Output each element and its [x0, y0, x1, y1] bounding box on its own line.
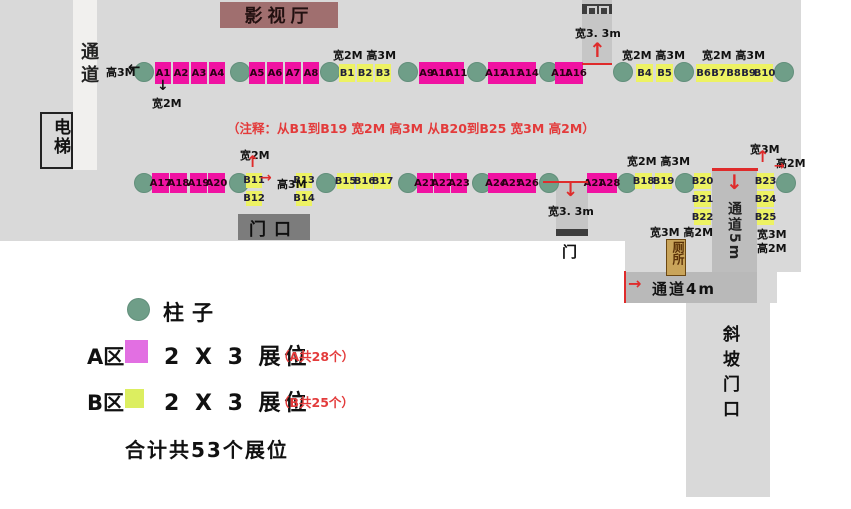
doorway-box: 门口	[238, 214, 310, 240]
ramp-doorway: 斜坡门口	[686, 303, 770, 497]
booth-B8: B8	[726, 64, 741, 82]
elevator-label: 电梯	[48, 118, 73, 156]
note-text: （注释：从B1到B19 宽2M 高3M 从B20到B25 宽3M 高2M）	[227, 118, 595, 137]
legend-pillar-icon	[127, 298, 150, 321]
red-arrow-icon: →	[774, 160, 785, 173]
booth-B10: B10	[756, 64, 773, 82]
ramp-doorway-label: 斜坡门口	[717, 325, 742, 425]
red-line	[712, 168, 758, 171]
passage-4m: 通道4m	[625, 272, 757, 303]
pillar	[230, 62, 250, 82]
booth-B19: B19	[655, 173, 672, 189]
floor-filler	[757, 272, 777, 303]
legend-zone-b-prefix: B区	[87, 387, 124, 417]
legend-zone-b-swatch	[125, 389, 144, 408]
booth-A28: A28	[602, 173, 617, 193]
booth-B23: B23	[757, 173, 774, 189]
booth-A16: A16	[569, 62, 583, 84]
pillar	[674, 62, 694, 82]
pillar	[774, 62, 794, 82]
red-arrow-icon: ↓	[726, 172, 743, 192]
booth-A14: A14	[520, 62, 536, 84]
black-arrow-icon: ←	[128, 60, 141, 75]
booth-B2: B2	[357, 64, 373, 82]
red-arrow-icon: ↑	[246, 154, 259, 170]
legend-zone-a-prefix: A区	[87, 341, 124, 371]
booth-B5: B5	[656, 64, 673, 82]
cinema-hall-box: 影视厅	[220, 2, 338, 28]
booth-B12: B12	[246, 191, 262, 206]
toilet-box: 厕所	[666, 239, 686, 276]
booth-A8: A8	[303, 62, 319, 84]
booth-A3: A3	[191, 62, 207, 84]
dimension-label: 宽3M 高2M	[650, 224, 713, 240]
floor-plan: 通道 电梯 影视厅 门口 门 通道5m 通道4m 斜坡门口 厕所 （注释：从B1…	[0, 0, 851, 509]
legend-zone-a-count: （A共28个）	[277, 346, 354, 365]
red-line	[543, 181, 588, 183]
pillar	[467, 62, 487, 82]
booth-A18: A18	[170, 173, 187, 193]
pillar	[613, 62, 633, 82]
dimension-label: 宽2M 高3M	[627, 153, 690, 169]
dimension-label: 宽2M 高3M	[622, 47, 685, 63]
booth-B21: B21	[694, 191, 711, 207]
pillar	[398, 62, 418, 82]
legend-pillar-label: 柱子	[163, 297, 221, 327]
door-glyph-icon	[587, 6, 597, 14]
legend-zone-a-swatch	[125, 340, 148, 363]
booth-A7: A7	[285, 62, 301, 84]
dimension-label: 宽2M	[152, 95, 182, 111]
booth-B4: B4	[636, 64, 653, 82]
dimension-label: 宽3. 3m	[548, 203, 594, 219]
red-arrow-icon: →	[260, 171, 272, 185]
pillar	[316, 173, 336, 193]
red-arrow-icon: ↑	[756, 149, 769, 165]
booth-B15: B15	[337, 173, 354, 189]
pillar	[776, 173, 796, 193]
dimension-label: 高3M	[277, 176, 307, 192]
red-arrow-icon: ↑	[589, 40, 606, 60]
black-arrow-icon: ↓	[157, 79, 169, 93]
booth-B25: B25	[757, 209, 774, 225]
booth-B20: B20	[694, 173, 711, 189]
booth-A5: A5	[249, 62, 265, 84]
booth-B17: B17	[374, 173, 391, 189]
booth-A4: A4	[209, 62, 225, 84]
red-line	[582, 63, 612, 65]
booth-B3: B3	[375, 64, 391, 82]
red-arrow-icon: →	[628, 276, 641, 292]
dimension-label: 宽2M 高3M	[702, 47, 765, 63]
toilet-label: 厕所	[670, 241, 687, 265]
booth-A17: A17	[152, 173, 169, 193]
legend-zone-b-count: （B共25个）	[277, 392, 354, 411]
booth-B24: B24	[757, 191, 774, 207]
middle-door-bar	[556, 229, 588, 236]
booth-A26: A26	[520, 173, 536, 193]
door-glyph-icon	[599, 6, 609, 14]
booth-A19: A19	[190, 173, 207, 193]
dimension-label: 宽2M 高3M	[333, 47, 396, 63]
left-corridor: 通道	[73, 0, 97, 170]
booth-B22: B22	[694, 209, 711, 225]
booth-A6: A6	[267, 62, 283, 84]
booth-B6: B6	[696, 64, 711, 82]
red-arrow-icon: ↓	[563, 182, 578, 200]
legend-total: 合计共53个展位	[125, 434, 289, 463]
booth-B18: B18	[635, 173, 652, 189]
booth-B16: B16	[356, 173, 373, 189]
booth-A23: A23	[451, 173, 467, 193]
dimension-label: 高2M	[757, 240, 787, 256]
corridor-5m-label: 通道5m	[724, 201, 744, 261]
elevator-box: 电梯	[40, 112, 73, 169]
left-corridor-label: 通道	[75, 42, 101, 88]
booth-B7: B7	[711, 64, 726, 82]
pillar	[539, 173, 559, 193]
passage-4m-label: 通道4m	[652, 278, 716, 299]
booth-B1: B1	[339, 64, 355, 82]
booth-B14: B14	[296, 191, 312, 206]
red-line	[624, 271, 626, 303]
booth-A11: A11	[449, 62, 464, 84]
booth-A20: A20	[208, 173, 225, 193]
booth-A2: A2	[173, 62, 189, 84]
middle-door-label: 门	[562, 241, 577, 262]
pillar	[320, 62, 340, 82]
